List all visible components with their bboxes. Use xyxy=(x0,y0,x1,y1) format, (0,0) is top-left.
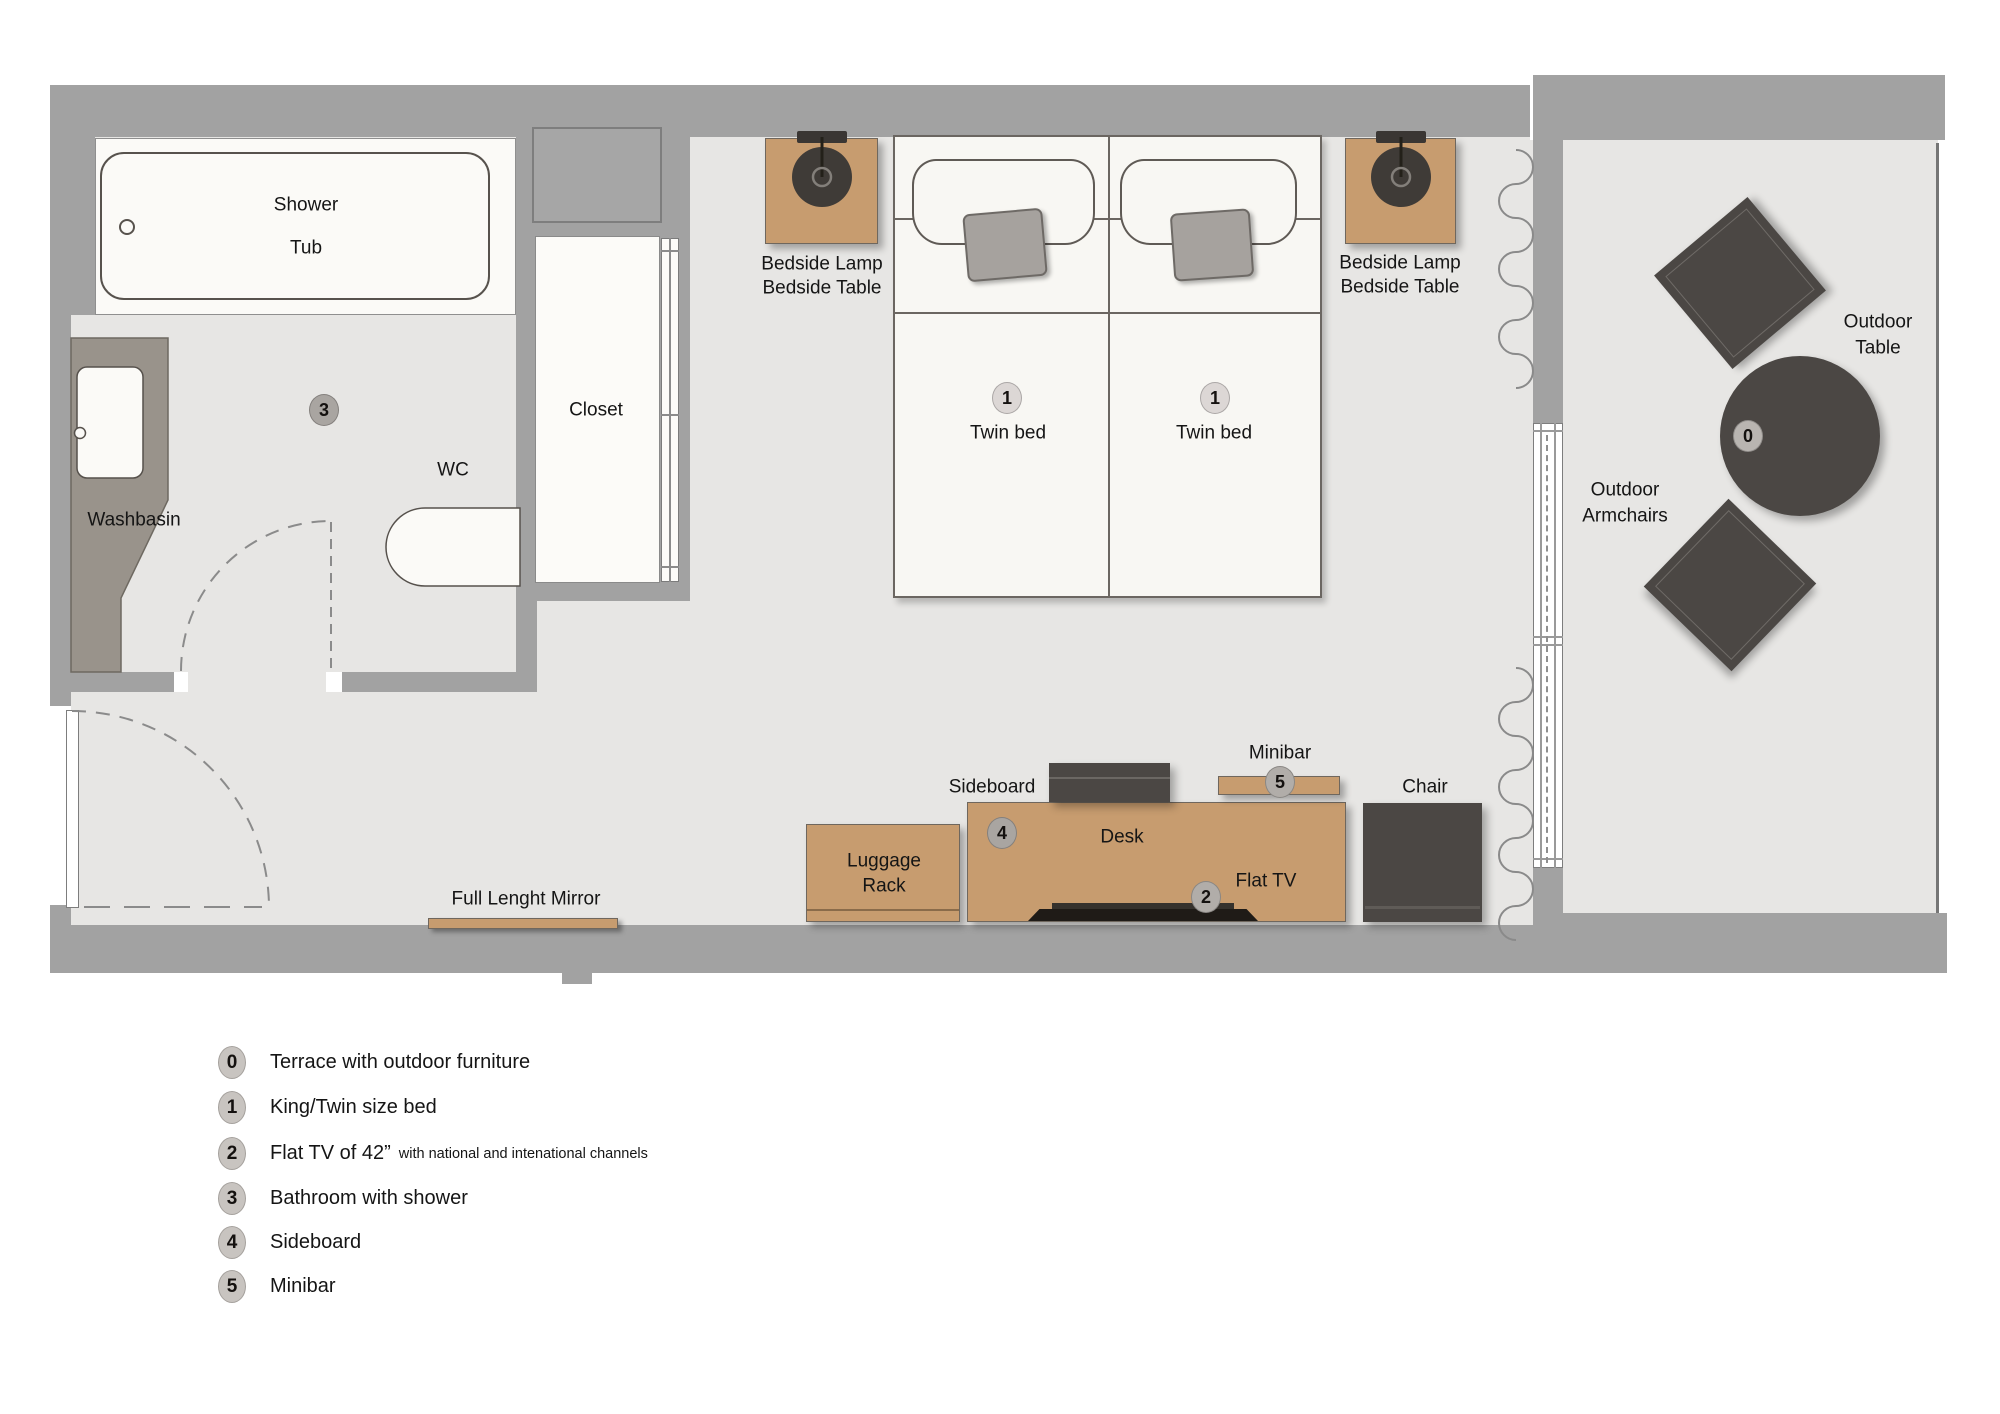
badge-sideboard: 4 xyxy=(987,817,1017,849)
wc-bowl xyxy=(386,508,520,586)
badge-terrace: 0 xyxy=(1733,420,1763,452)
badge-bed-right: 1 xyxy=(1200,382,1230,414)
legend-badge-3: 3 xyxy=(218,1182,246,1215)
chair-label: Chair xyxy=(1402,778,1447,797)
legend-badge-2: 2 xyxy=(218,1137,246,1170)
legend-text-4: Sideboard xyxy=(270,1231,361,1254)
badge-tv: 2 xyxy=(1191,881,1221,913)
outdoor-table-label-2: Table xyxy=(1855,339,1900,358)
full-length-mirror xyxy=(428,918,618,929)
legend-badge-5: 5 xyxy=(218,1270,246,1303)
legend-item-bathroom: 3 Bathroom with shower xyxy=(218,1182,468,1215)
bed-divider-line xyxy=(1108,137,1110,596)
bedside-table-right-label: Bedside Table xyxy=(1340,278,1459,297)
outdoor-armchairs-label-2: Armchairs xyxy=(1582,507,1668,526)
bedside-lamp-icon xyxy=(1366,131,1436,211)
luggage-rack-edge-line xyxy=(807,909,959,911)
legend-badge-4: 4 xyxy=(218,1226,246,1259)
wc-label: WC xyxy=(437,461,469,480)
bedside-table-right xyxy=(1345,138,1456,244)
sink-faucet-icon xyxy=(75,428,86,439)
twin-bed-left-label: Twin bed xyxy=(970,424,1046,443)
legend-text-2: Flat TV of 42” xyxy=(270,1142,391,1165)
legend-badge-1: 1 xyxy=(218,1091,246,1124)
legend-item-terrace: 0 Terrace with outdoor furniture xyxy=(218,1046,530,1079)
curtain-lower xyxy=(1499,668,1533,940)
bathroom-door-swing-arc xyxy=(181,521,331,671)
minibar-label: Minibar xyxy=(1249,744,1311,763)
shower-label: Shower xyxy=(274,196,338,215)
bedside-lamp-left-label: Bedside Lamp xyxy=(761,255,882,274)
legend-item-bed: 1 King/Twin size bed xyxy=(218,1091,437,1124)
tub-label: Tub xyxy=(290,239,322,258)
bedside-lamp-right-label: Bedside Lamp xyxy=(1339,254,1460,273)
floor-plan: 3 1 1 0 4 5 2 Shower Tub Washbasin WC Cl… xyxy=(0,0,2000,1414)
legend-text-0: Terrace with outdoor furniture xyxy=(270,1051,530,1074)
mirror-label: Full Lenght Mirror xyxy=(452,890,601,909)
badge-minibar: 5 xyxy=(1265,766,1295,798)
legend-note-2: with national and intenational channels xyxy=(399,1146,648,1162)
desk-chair xyxy=(1363,803,1482,922)
pillow-left xyxy=(962,208,1048,283)
sideboard-seam-line xyxy=(1049,777,1170,779)
flat-tv-base xyxy=(1028,909,1258,921)
legend-item-minibar: 5 Minibar xyxy=(218,1270,336,1303)
legend-text-1: King/Twin size bed xyxy=(270,1096,437,1119)
curtain-upper xyxy=(1499,150,1533,388)
legend-item-sideboard: 4 Sideboard xyxy=(218,1226,361,1259)
sideboard-console xyxy=(1049,763,1170,802)
bedside-table-left-label: Bedside Table xyxy=(762,279,881,298)
flat-tv-label: Flat TV xyxy=(1236,872,1297,891)
legend-item-tv: 2 Flat TV of 42” with national and inten… xyxy=(218,1137,648,1170)
bedside-table-left xyxy=(765,138,878,244)
bedside-lamp-icon xyxy=(787,131,857,211)
desk-chair-seam xyxy=(1365,906,1480,909)
outdoor-table-label-1: Outdoor xyxy=(1844,313,1913,332)
legend-badge-0: 0 xyxy=(218,1046,246,1079)
washbasin-sink xyxy=(77,367,143,478)
pillow-right xyxy=(1170,208,1255,281)
luggage-rack xyxy=(806,824,960,922)
luggage-rack-label-1: Luggage xyxy=(847,852,921,871)
luggage-rack-label-2: Rack xyxy=(862,877,905,896)
closet-label: Closet xyxy=(569,401,623,420)
twin-bed-right-label: Twin bed xyxy=(1176,424,1252,443)
outdoor-armchairs-label-1: Outdoor xyxy=(1591,481,1660,500)
washbasin-label: Washbasin xyxy=(87,511,180,530)
bed-sheet-line xyxy=(895,312,1320,314)
entry-door-swing-arc xyxy=(72,711,269,908)
badge-bed-left: 1 xyxy=(992,382,1022,414)
badge-bathroom: 3 xyxy=(309,394,339,426)
desk-label: Desk xyxy=(1100,828,1143,847)
sideboard-label: Sideboard xyxy=(949,778,1036,797)
legend-text-5: Minibar xyxy=(270,1275,336,1298)
flat-tv-base-shape xyxy=(1028,909,1258,921)
legend-text-3: Bathroom with shower xyxy=(270,1187,468,1210)
